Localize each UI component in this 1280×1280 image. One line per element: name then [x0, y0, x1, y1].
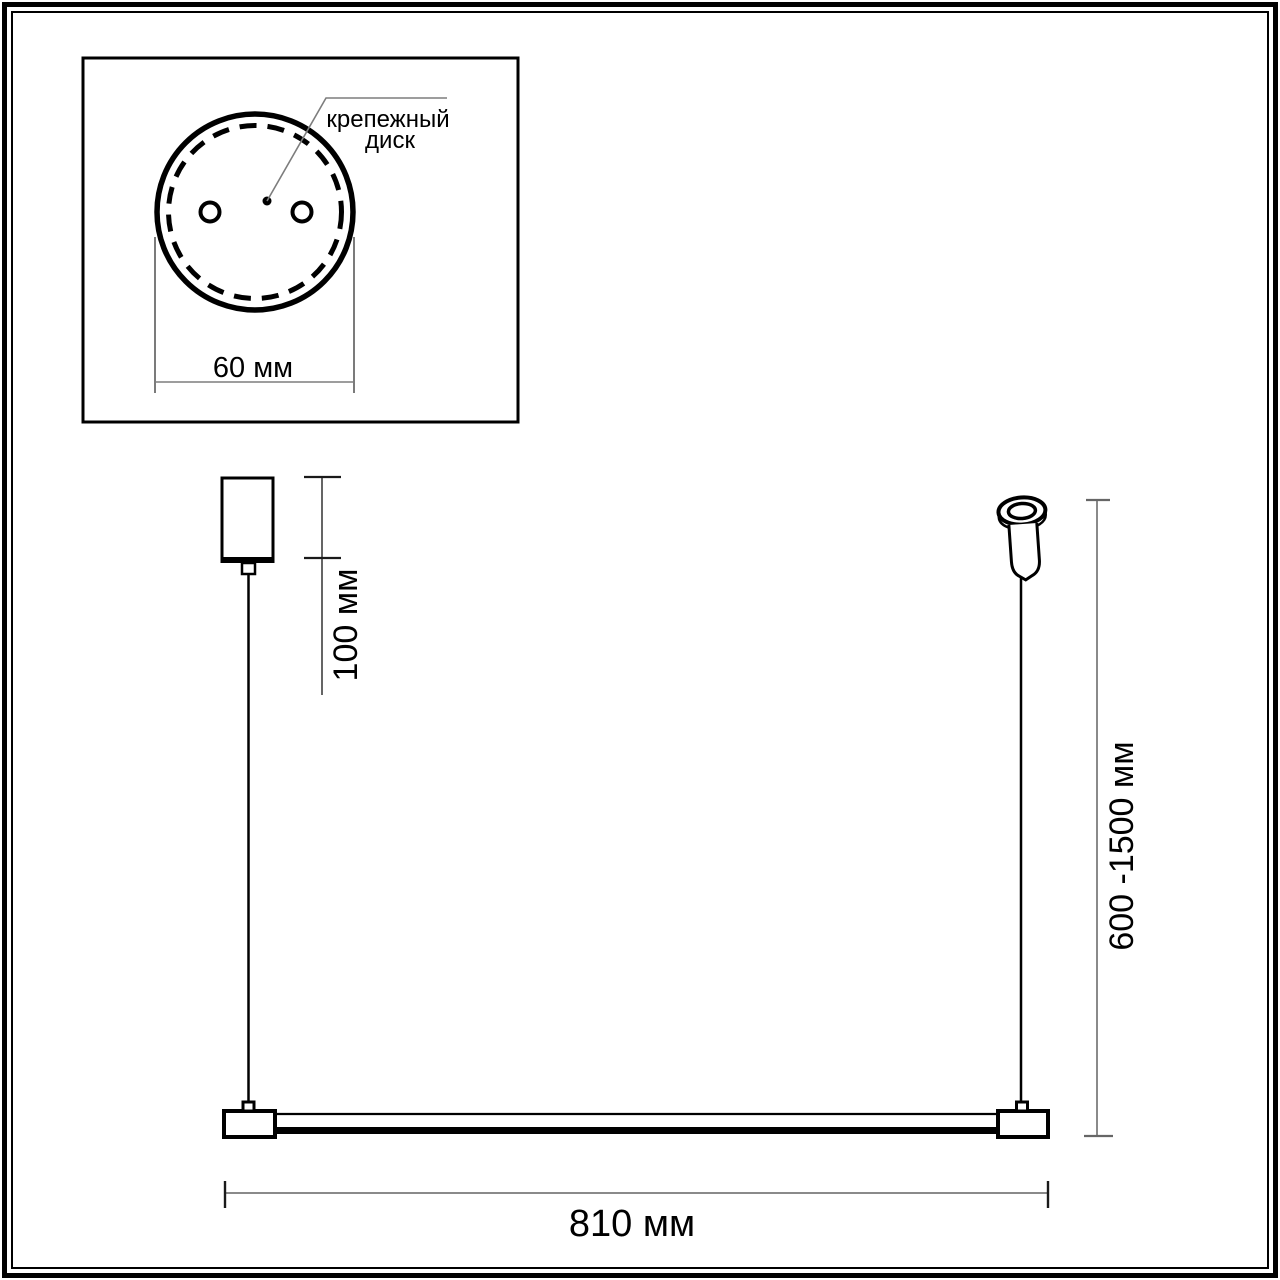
screw-hole-right — [293, 203, 312, 222]
light-bar-end-cap-right — [998, 1111, 1048, 1137]
canopy-cable-gripper — [242, 563, 255, 574]
cable-connector-left — [243, 1102, 254, 1111]
fixture-installation-drawing: крепежный диск 60 мм 100 мм 600 -1500 мм — [0, 0, 1280, 1280]
callout-label-line2: диск — [365, 127, 415, 154]
light-bar-led-strip — [275, 1127, 998, 1134]
ceiling-canopy — [222, 478, 273, 560]
diagram-page: крепежный диск 60 мм 100 мм 600 -1500 мм — [0, 0, 1280, 1280]
mount-body — [1009, 523, 1041, 581]
diameter-label: 60 мм — [213, 352, 293, 384]
screw-hole-left — [201, 203, 220, 222]
light-bar-end-cap-left — [224, 1111, 275, 1137]
suspension-height-label: 600 -1500 мм — [1103, 741, 1141, 950]
bar-length-label: 810 мм — [569, 1203, 695, 1245]
cable-connector-right — [1017, 1102, 1028, 1111]
mounting-disk-outline — [157, 114, 353, 310]
mount-flange-inner-ring — [1008, 503, 1036, 520]
ceiling-mount-grip — [998, 496, 1051, 582]
canopy-height-label: 100 мм — [327, 569, 365, 682]
